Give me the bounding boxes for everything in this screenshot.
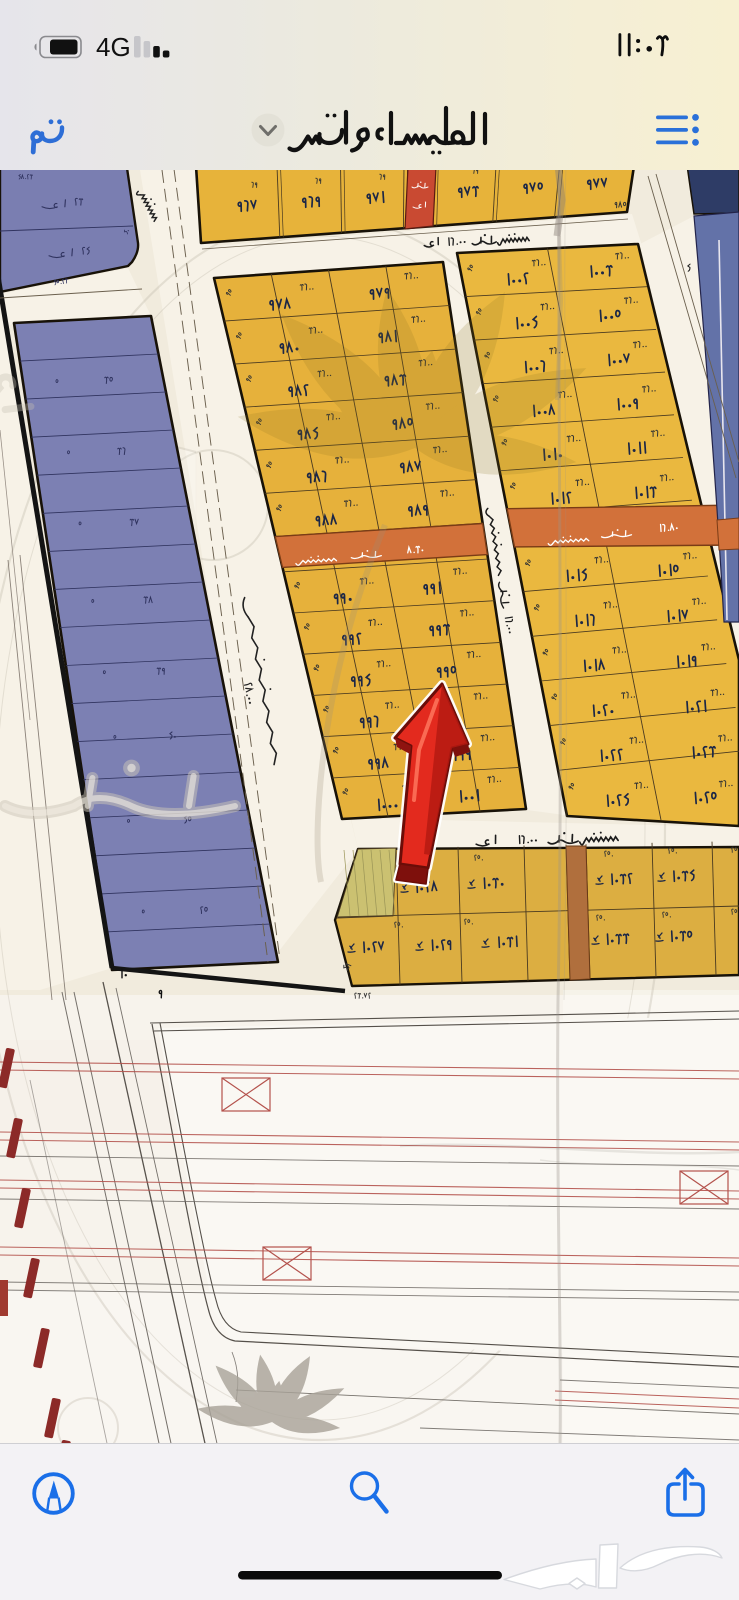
svg-text:4G: 4G [96,32,131,62]
